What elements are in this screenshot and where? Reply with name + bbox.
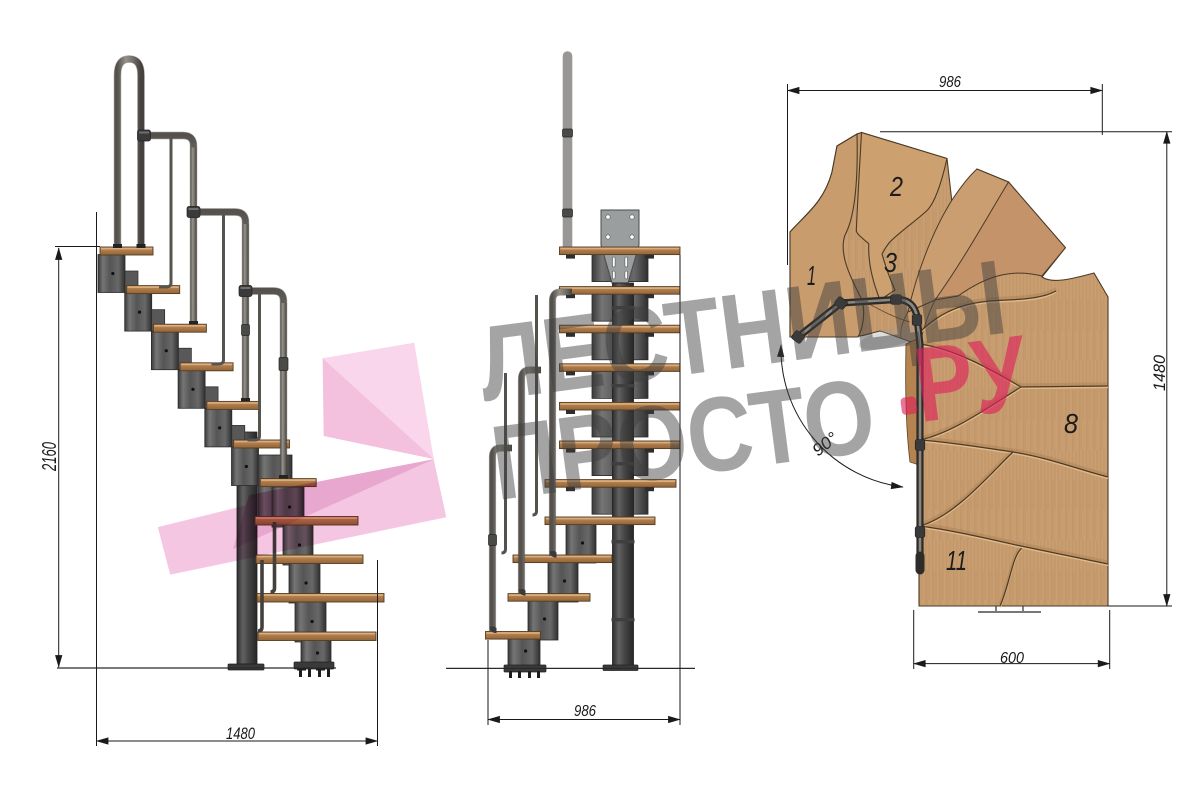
svg-text:600: 600 bbox=[1000, 650, 1024, 667]
svg-text:2: 2 bbox=[889, 171, 903, 202]
svg-text:1480: 1480 bbox=[226, 724, 255, 743]
svg-text:986: 986 bbox=[939, 74, 961, 91]
svg-text:11: 11 bbox=[946, 545, 967, 576]
svg-text:986: 986 bbox=[574, 703, 596, 720]
svg-text:РУ: РУ bbox=[908, 313, 1035, 445]
svg-text:1480: 1480 bbox=[1150, 354, 1169, 391]
svg-text:2160: 2160 bbox=[39, 442, 61, 472]
svg-text:8: 8 bbox=[1064, 408, 1078, 439]
